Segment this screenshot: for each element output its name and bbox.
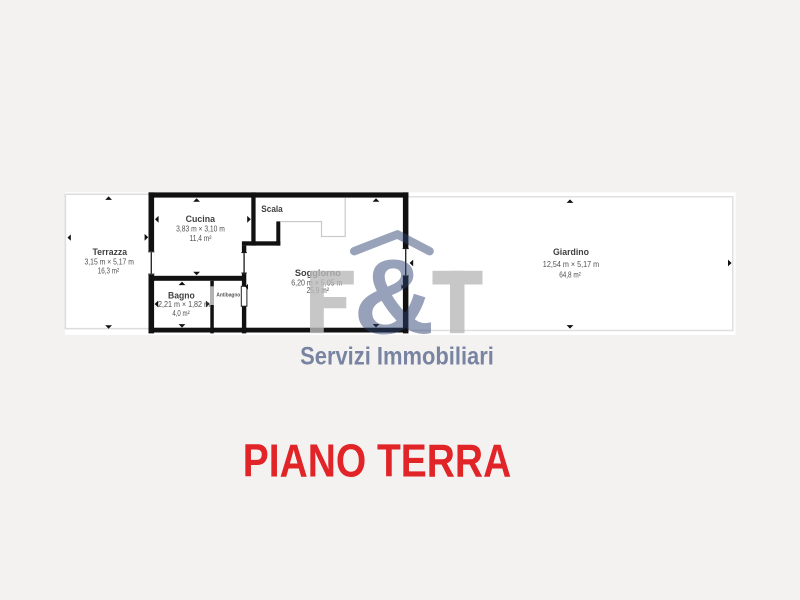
svg-text:Servizi Immobiliari: Servizi Immobiliari <box>300 342 494 369</box>
svg-text:Scala: Scala <box>261 204 283 215</box>
svg-text:11,4 m²: 11,4 m² <box>190 233 212 243</box>
svg-text:64,8 m²: 64,8 m² <box>559 269 581 279</box>
svg-text:Antibagno: Antibagno <box>216 293 241 299</box>
svg-text:16,3 m²: 16,3 m² <box>98 266 119 276</box>
svg-text:PIANO TERRA: PIANO TERRA <box>243 435 511 487</box>
svg-text:&: & <box>353 238 434 357</box>
svg-text:12,54 m × 5,17 m: 12,54 m × 5,17 m <box>543 259 599 269</box>
svg-text:4,0 m²: 4,0 m² <box>172 308 189 318</box>
svg-text:Giardino: Giardino <box>553 247 589 258</box>
